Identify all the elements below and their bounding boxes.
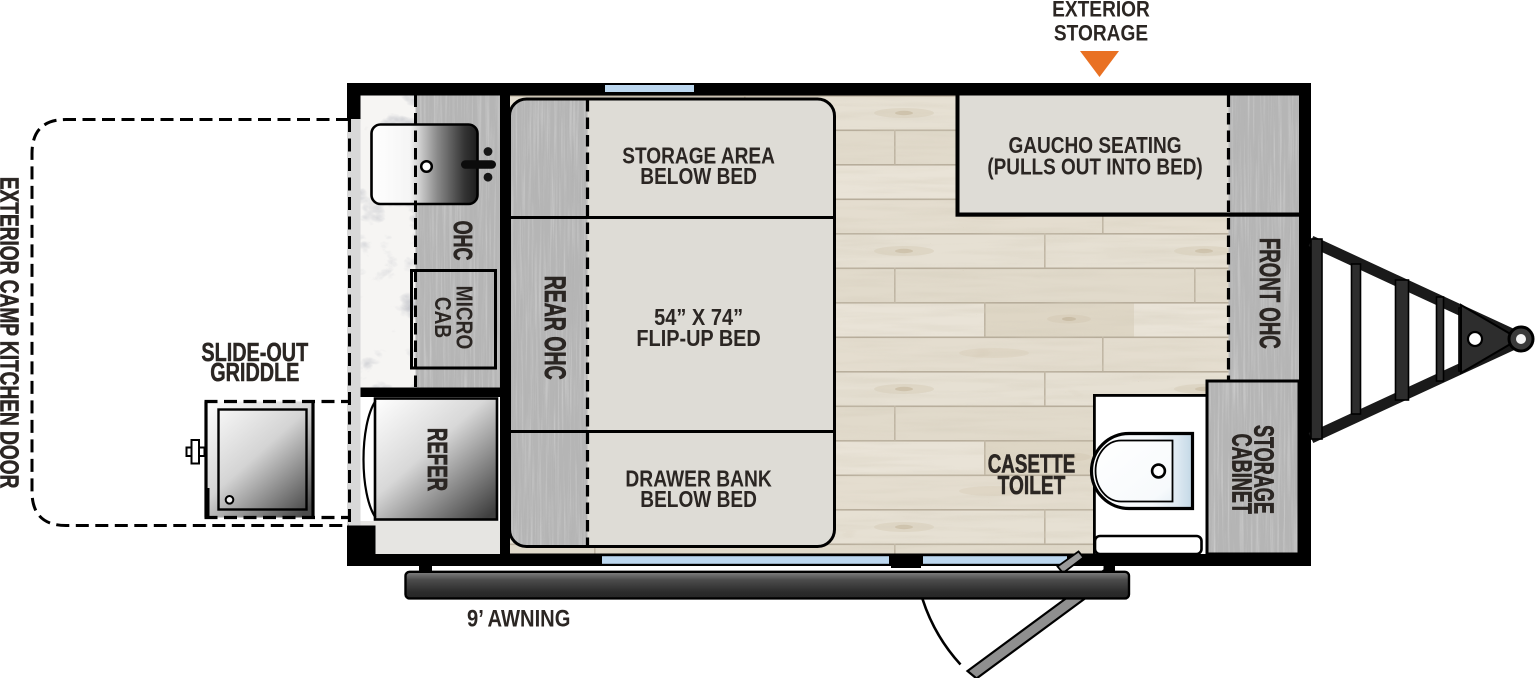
svg-text:TOILET: TOILET: [998, 471, 1066, 499]
svg-text:REFER: REFER: [422, 428, 452, 491]
svg-text:STORAGE: STORAGE: [1054, 21, 1148, 46]
svg-text:EXTERIOR: EXTERIOR: [1052, 0, 1150, 22]
svg-text:FRONT OHC: FRONT OHC: [1253, 238, 1285, 349]
svg-text:GRIDDLE: GRIDDLE: [210, 358, 299, 387]
svg-text:BELOW BED: BELOW BED: [640, 487, 757, 512]
svg-text:9’ AWNING: 9’ AWNING: [467, 605, 570, 632]
svg-text:EXTERIOR CAMP KITCHEN DOOR: EXTERIOR CAMP KITCHEN DOOR: [0, 177, 24, 489]
svg-text:FLIP-UP BED: FLIP-UP BED: [636, 326, 760, 352]
svg-text:REAR OHC: REAR OHC: [538, 276, 571, 380]
svg-text:(PULLS OUT INTO BED): (PULLS OUT INTO BED): [987, 155, 1202, 180]
svg-text:OHC: OHC: [448, 221, 477, 261]
svg-text:CABINET: CABINET: [1226, 434, 1257, 515]
svg-text:CAB: CAB: [430, 297, 456, 338]
svg-text:BELOW BED: BELOW BED: [640, 164, 757, 189]
